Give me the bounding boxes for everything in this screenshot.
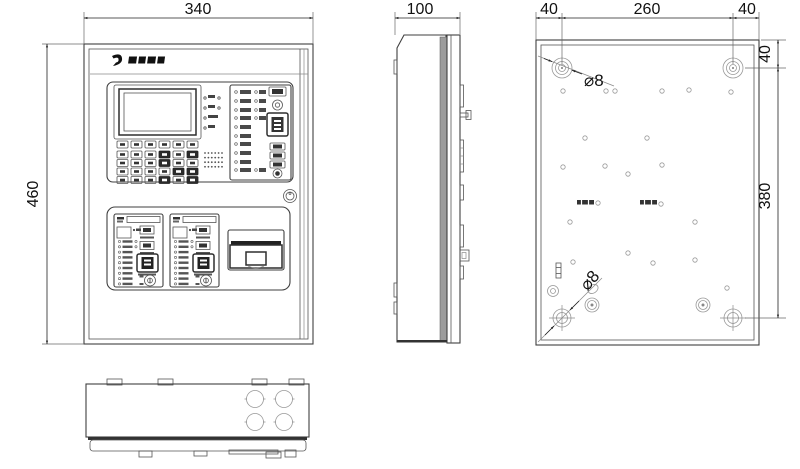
fixing-holes [561, 88, 733, 290]
door-bottom-edge [90, 440, 306, 451]
back-plate-outline [536, 40, 759, 345]
dim-label-460: 460 [25, 181, 42, 208]
main-control-panel [107, 82, 293, 184]
bottom-body [86, 384, 309, 437]
bottom-view [86, 379, 309, 458]
mounting-hole-bottom-right [720, 305, 746, 331]
knockout-hole [247, 414, 264, 431]
emergency-start-button [267, 113, 288, 136]
bottom-hole-diameter-label: ⌀8 [576, 267, 603, 294]
cable-knockouts [245, 391, 295, 431]
dimension-side-depth: 100 [395, 1, 460, 35]
printer [228, 230, 284, 270]
knockout-hole [276, 391, 293, 408]
lcd-display [114, 85, 201, 139]
dimension-back-top: 40 260 40 [536, 1, 759, 64]
top-hole-callout: ⌀8 [538, 56, 614, 90]
front-view [84, 44, 313, 344]
technical-drawing-fire-panel: ⌀8 ⌀8 [0, 0, 800, 469]
mounting-slots [556, 200, 657, 278]
dimension-front-width: 340 [84, 1, 313, 44]
control-buttons [270, 143, 285, 178]
status-led-column [204, 95, 220, 129]
dim-label-40-top: 40 [757, 45, 774, 63]
drawing-svg: ⌀8 ⌀8 [0, 0, 800, 469]
back-view: ⌀8 ⌀8 [536, 40, 759, 345]
numeric-keypad [117, 151, 198, 184]
zone-module-1 [114, 214, 163, 287]
hinges-and-latches [460, 85, 471, 279]
function-keys [117, 141, 198, 148]
dim-label-340: 340 [185, 1, 212, 18]
door-lock [284, 190, 297, 203]
key-switch [273, 100, 283, 110]
dimension-front-height: 460 [25, 44, 84, 344]
mute-button [269, 87, 286, 96]
door-edge [440, 37, 447, 341]
cabinet-body [447, 35, 460, 343]
bottom-hole-callout: ⌀8 [538, 267, 603, 342]
brand-logo [112, 54, 165, 66]
dimension-back-right: 40 380 [745, 40, 786, 318]
dim-label-380: 380 [757, 183, 774, 210]
indicator-panel [230, 85, 291, 180]
dim-label-260: 260 [634, 1, 661, 18]
knockout-hole [276, 414, 293, 431]
release-control-panel [107, 207, 290, 290]
dim-label-100: 100 [407, 1, 434, 18]
side-view [394, 35, 471, 343]
speaker-grille [204, 152, 223, 168]
knockout-hole [247, 391, 264, 408]
dim-label-40-right: 40 [738, 1, 756, 18]
top-hole-diameter-label: ⌀8 [584, 71, 604, 90]
dim-label-40-left: 40 [540, 1, 558, 18]
zone-module-2 [170, 214, 219, 287]
